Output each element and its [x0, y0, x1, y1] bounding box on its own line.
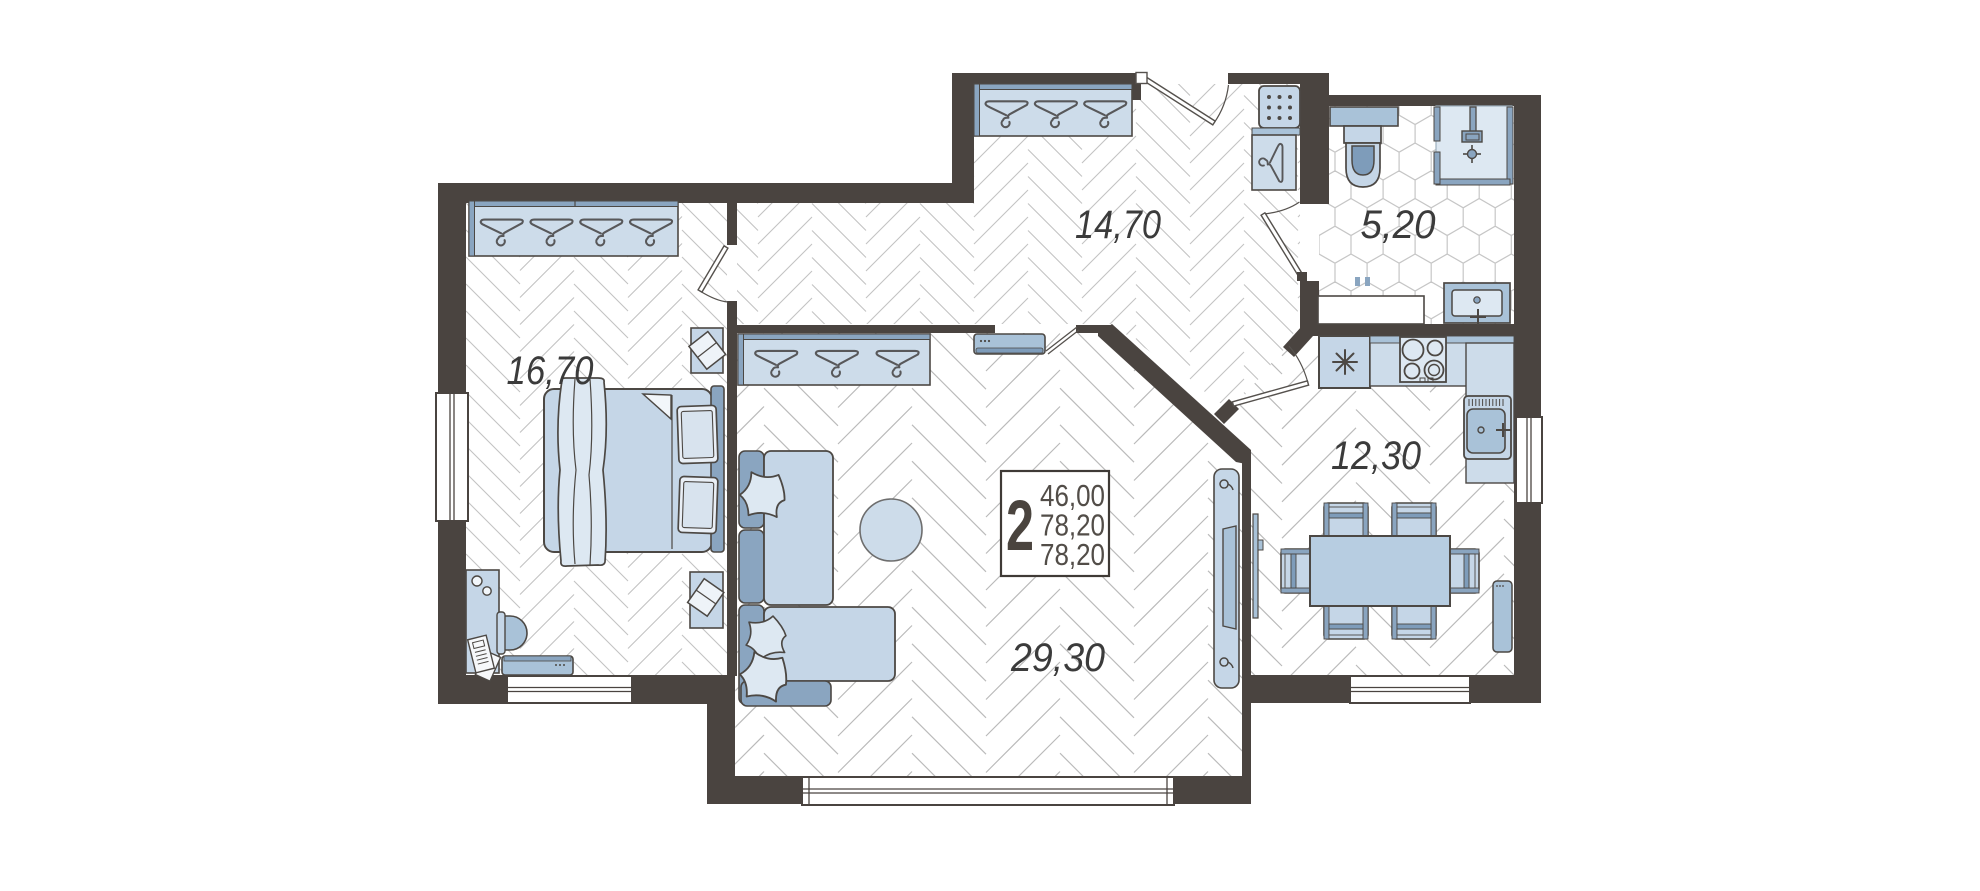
svg-text:78,20: 78,20 [1040, 537, 1105, 572]
svg-text:12,30: 12,30 [1331, 434, 1421, 478]
svg-text:29,30: 29,30 [1010, 636, 1105, 680]
svg-text:14,70: 14,70 [1075, 203, 1161, 247]
svg-text:5,20: 5,20 [1361, 203, 1436, 247]
svg-text:16,70: 16,70 [507, 349, 594, 393]
svg-text:2: 2 [1006, 487, 1034, 566]
